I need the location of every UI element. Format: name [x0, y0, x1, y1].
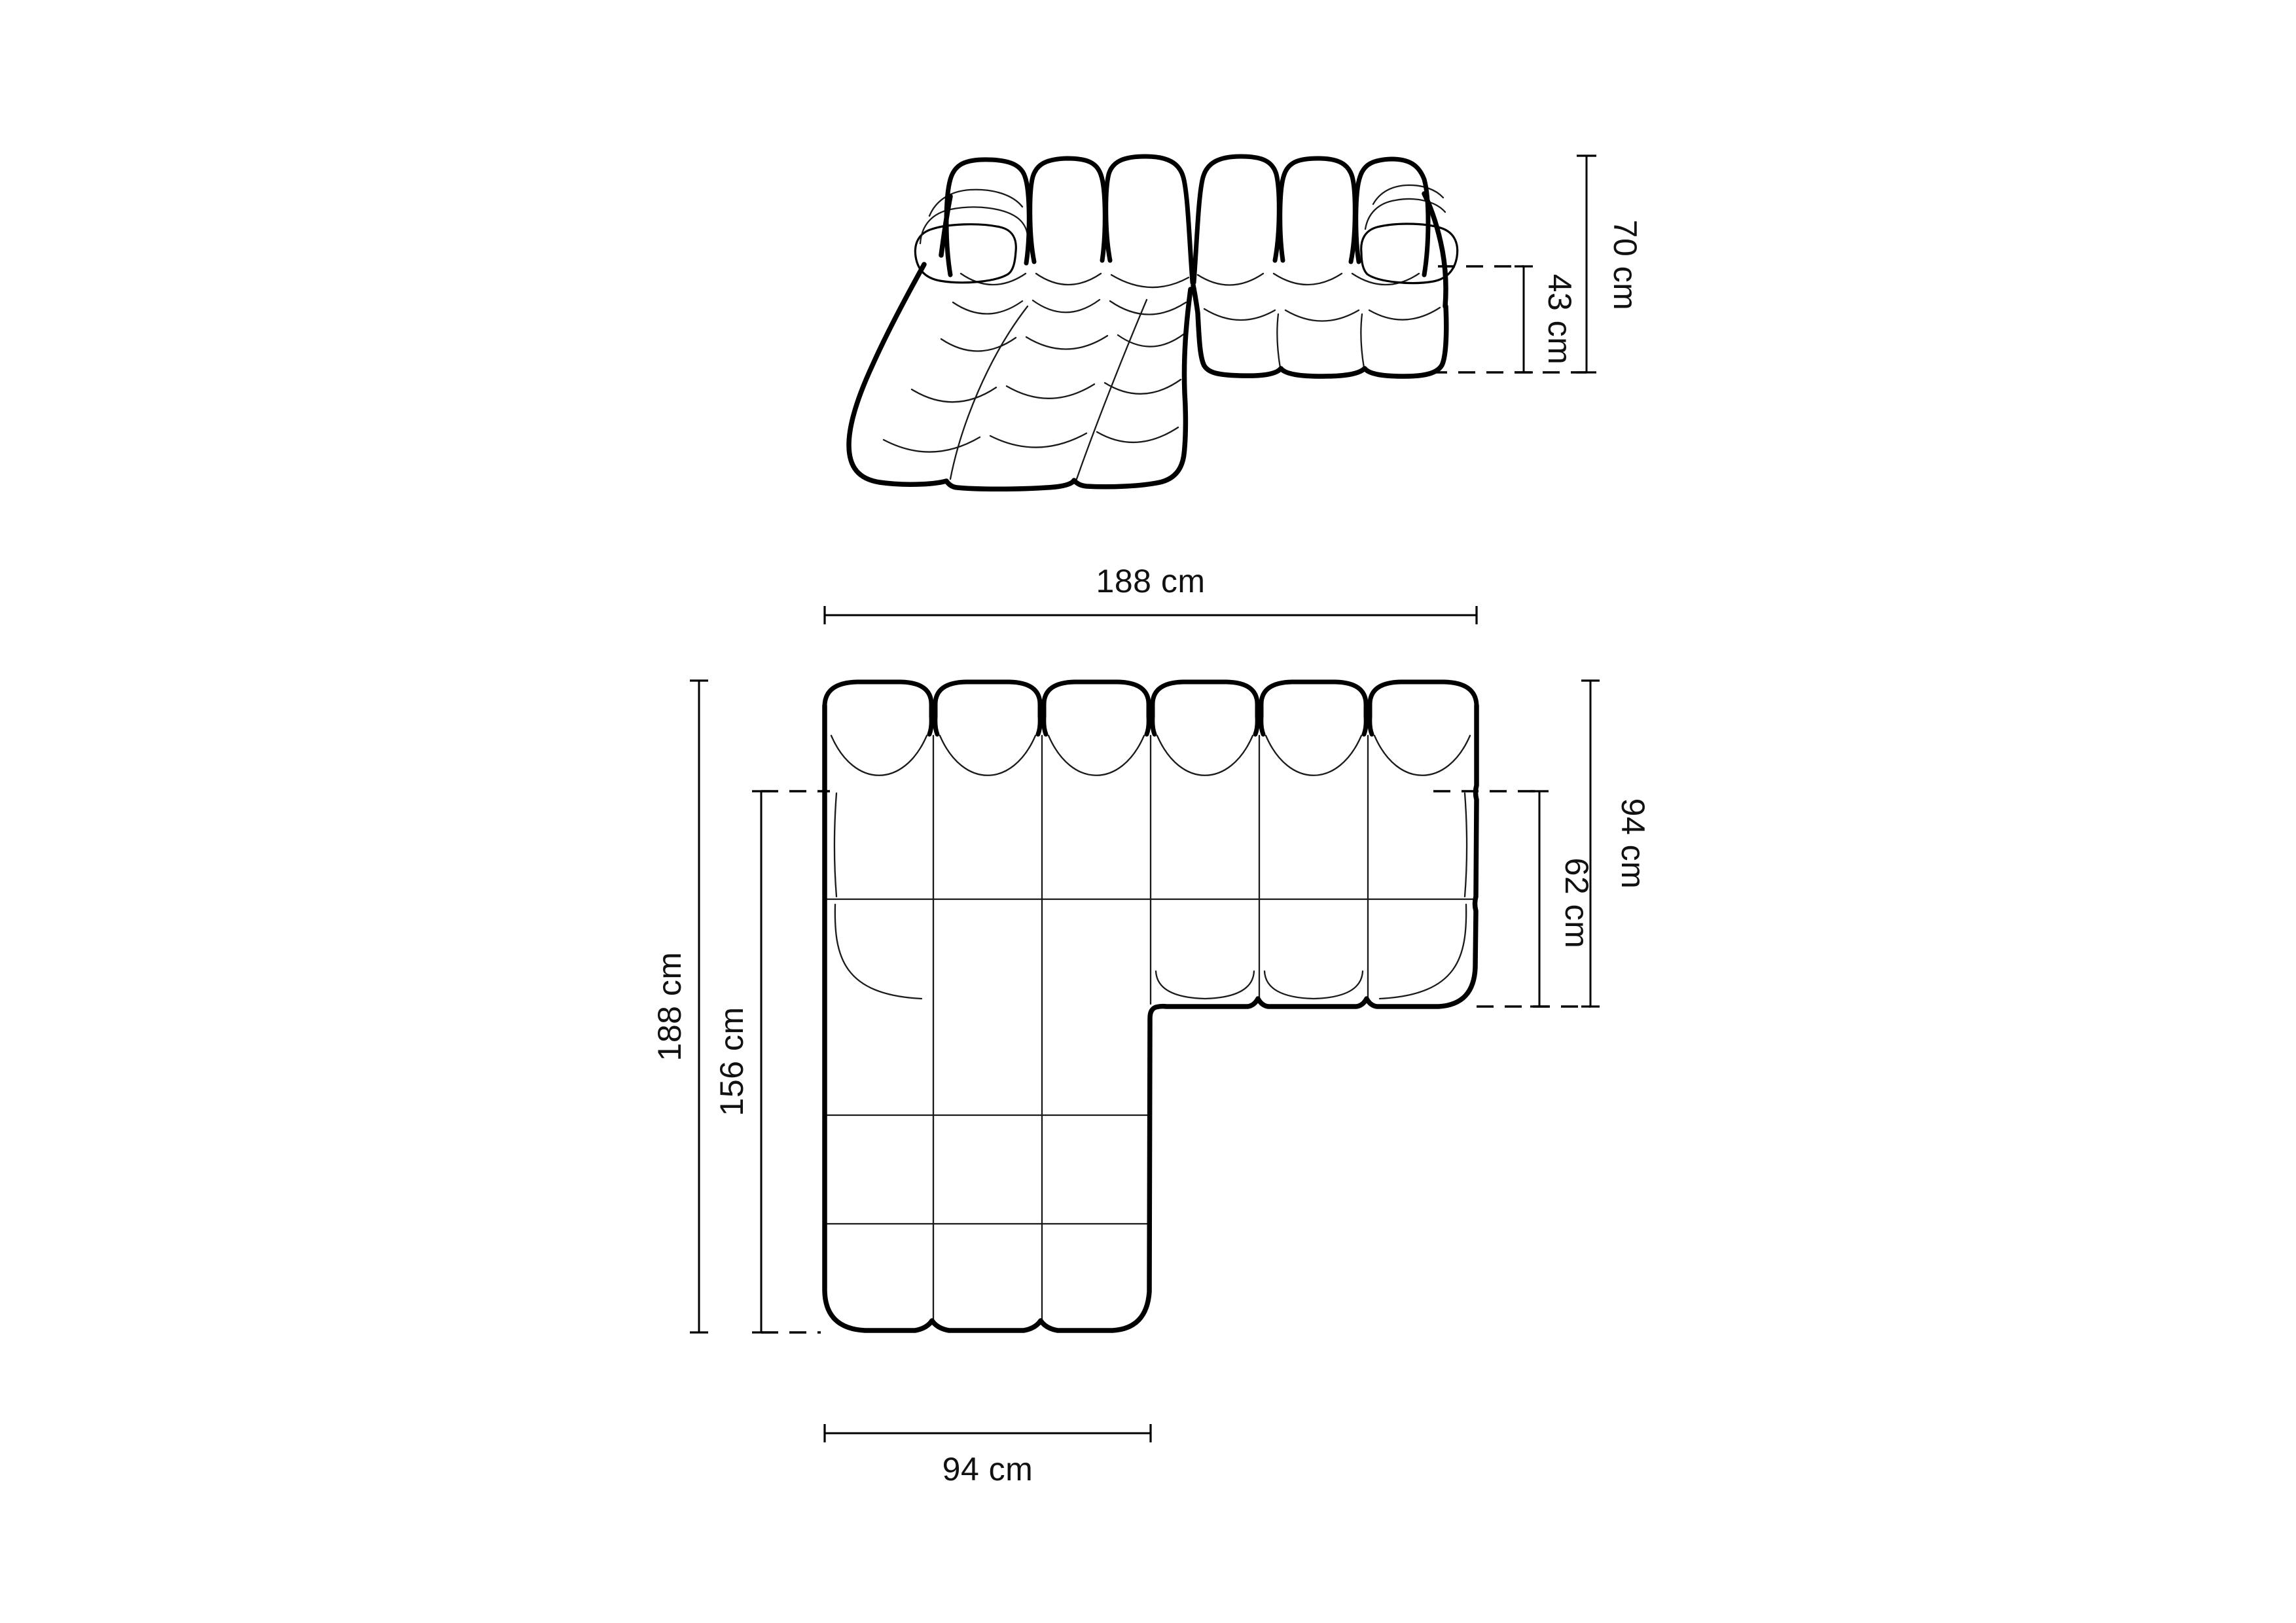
dim-label-seat-height: 43 cm [1541, 274, 1578, 365]
dim-seat-height: 43 cm [1430, 266, 1587, 372]
front-view-dimensions: 70 cm 43 cm [1430, 156, 1643, 372]
front-view: 70 cm 43 cm [849, 156, 1643, 489]
left-module-inner-lines [834, 793, 922, 999]
back-pillow-3 [1106, 156, 1193, 283]
seat-tufting-row-2-left [953, 300, 1186, 315]
dim-sofa-depth: 94 cm [1581, 681, 1651, 1007]
plan-back-cushion-1 [825, 682, 931, 734]
plan-back-cushion-4 [1153, 682, 1257, 734]
right-seat-seams [1277, 314, 1364, 368]
plan-back-cushion-2 [935, 682, 1040, 734]
plan-back-cushion-6 [1370, 682, 1477, 734]
back-pillow-4 [1194, 156, 1279, 283]
right-module-inner-lines [1380, 793, 1467, 999]
back-pillow-2 [1030, 158, 1105, 262]
dim-label-total-width: 188 cm [1096, 563, 1206, 599]
back-pillow-5 [1280, 158, 1355, 262]
plan-back-cushion-5 [1261, 682, 1366, 734]
front-view-sofa-drawing [849, 156, 1458, 489]
dim-total-depth: 188 cm [651, 681, 708, 1332]
dim-chaise-length: 156 cm [713, 791, 830, 1332]
chaise-tufting-row-5 [884, 427, 1178, 452]
chaise-tufting-row-4 [912, 380, 1181, 402]
left-armrest-cushion [915, 224, 1016, 283]
chaise-tufting-row-3 [941, 332, 1186, 351]
sofa-dimension-diagram: 70 cm 43 cm [0, 0, 2296, 1623]
chaise-horizontal-seams [826, 1115, 1149, 1224]
dim-label-total-depth: 188 cm [651, 952, 688, 1061]
plan-view-sofa-drawing [825, 682, 1477, 1330]
dim-label-seat-depth: 62 cm [1558, 858, 1595, 949]
plan-back-cushion-3 [1044, 682, 1149, 734]
dim-chaise-width: 94 cm [825, 1424, 1151, 1488]
plan-view: 188 cm 188 cm 156 cm 94 cm [651, 563, 1651, 1488]
left-armrest-back-folds [920, 190, 1028, 245]
back-pillow-6 [1356, 159, 1428, 275]
chaise-outline [849, 264, 1191, 489]
extension-dashed-line [761, 791, 830, 1332]
seat-tufting-row-2-right [1204, 308, 1440, 321]
right-seat-front-outline [1193, 285, 1446, 376]
dim-label-sofa-depth: 94 cm [1615, 798, 1651, 889]
dim-label-chaise-width: 94 cm [942, 1451, 1033, 1488]
dim-total-width: 188 cm [825, 563, 1477, 624]
dim-label-chaise-length: 156 cm [713, 1007, 750, 1116]
dim-total-height: 70 cm [1577, 156, 1643, 372]
dim-label-total-height: 70 cm [1607, 220, 1643, 311]
